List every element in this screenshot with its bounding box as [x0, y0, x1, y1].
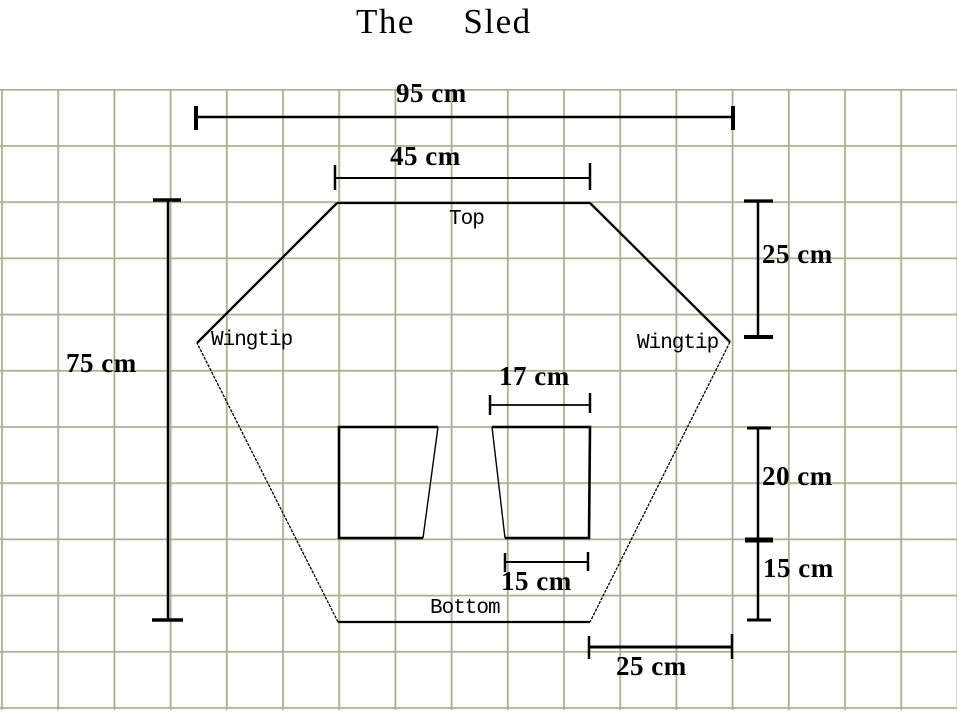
dim-label-45cm: 45 cm	[390, 143, 461, 170]
part-label-bottom: Bottom	[430, 598, 500, 619]
dim-label-75cm: 75 cm	[66, 350, 137, 377]
sled-diagram-page: The Sled 95 cm 45 cm 25 cm 75 cm 17 cm 2…	[0, 0, 957, 715]
dim-label-25cm-bottom: 25 cm	[616, 653, 687, 680]
dim-label-15cm-bottom: 15 cm	[501, 568, 572, 595]
dim-label-15cm-right: 15 cm	[763, 555, 834, 582]
dim-label-20cm: 20 cm	[762, 463, 833, 490]
part-label-top: Top	[449, 209, 484, 230]
dim-label-25cm-right: 25 cm	[762, 241, 833, 268]
dim-label-17cm: 17 cm	[499, 363, 570, 390]
part-label-wingtip-right: Wingtip	[637, 333, 718, 354]
diagram-title: The Sled	[356, 4, 532, 39]
dim-label-95cm: 95 cm	[396, 80, 467, 107]
part-label-wingtip-left: Wingtip	[211, 330, 292, 351]
